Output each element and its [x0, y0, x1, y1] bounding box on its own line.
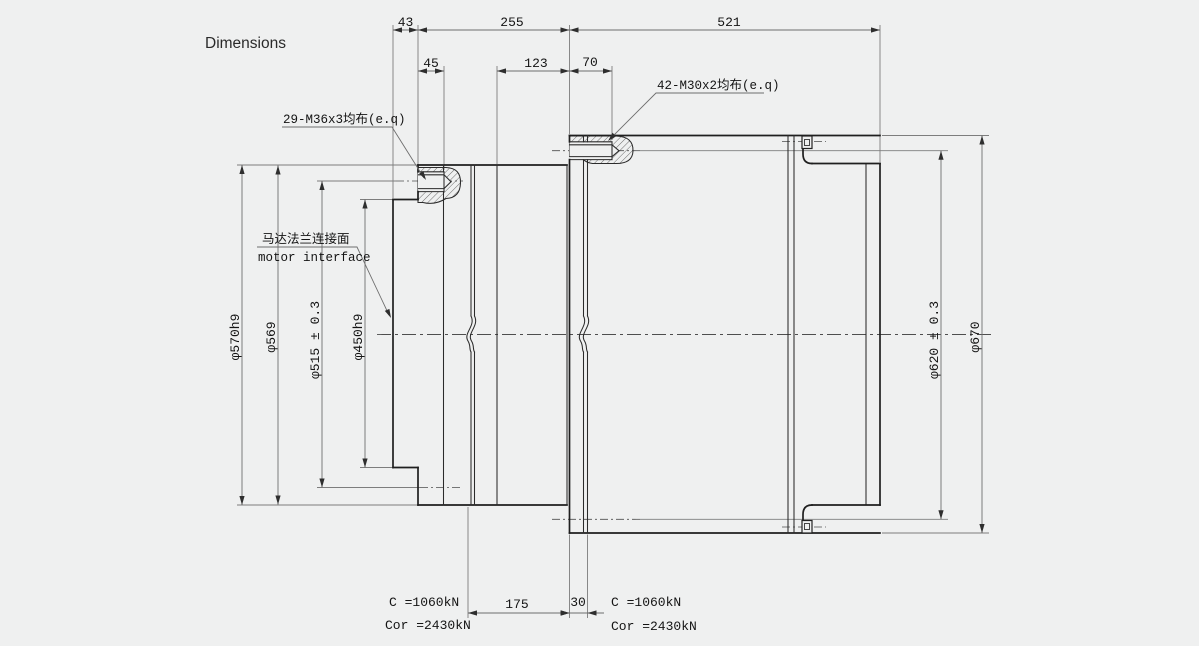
rating-right-static: Cor =2430kN: [611, 619, 697, 634]
grease-fitting-bottom: [802, 521, 812, 534]
callout-bolts-left: 29-M36x3均布(e.q): [283, 112, 406, 127]
callout-motor-interface-en: motor interface: [258, 251, 371, 265]
gearbox-section-drawing: Dimensions 43 255 521 45 123 70 175 30 φ…: [0, 0, 1199, 646]
dim-30: 30: [570, 595, 586, 610]
dim-dia-570: φ570h9: [228, 314, 243, 361]
leader-bolts-right: [610, 93, 764, 139]
tapped-holes: [418, 142, 619, 192]
rating-left-dynamic: C =1060kN: [389, 595, 459, 610]
dim-43: 43: [398, 15, 414, 30]
engineering-drawing-canvas: Dimensions 43 255 521 45 123 70 175 30 φ…: [0, 0, 1199, 646]
rating-left-static: Cor =2430kN: [385, 618, 471, 633]
centerlines: [377, 142, 992, 528]
leader-bolts-left: [282, 127, 424, 178]
dim-dia-620: φ620 ± 0.3: [927, 301, 942, 379]
dim-255: 255: [500, 15, 523, 30]
callout-bolts-right: 42-M30x2均布(e.q): [657, 78, 780, 93]
dim-dia-569: φ569: [264, 321, 279, 352]
dim-175: 175: [505, 597, 528, 612]
flange-outline: [393, 165, 567, 505]
dim-dia-670: φ670: [968, 321, 983, 352]
page-title: Dimensions: [205, 35, 286, 52]
dim-dia-450: φ450h9: [351, 314, 366, 361]
grease-fitting-top: [802, 136, 812, 149]
dim-45: 45: [423, 56, 439, 71]
callout-motor-interface-cn: 马达法兰连接面: [262, 231, 350, 247]
dim-123: 123: [524, 56, 547, 71]
gear-break-line: [470, 316, 475, 352]
rating-right-dynamic: C =1060kN: [611, 595, 681, 610]
dim-521: 521: [717, 15, 741, 30]
dim-70: 70: [582, 55, 598, 70]
dim-dia-515: φ515 ± 0.3: [308, 301, 323, 379]
